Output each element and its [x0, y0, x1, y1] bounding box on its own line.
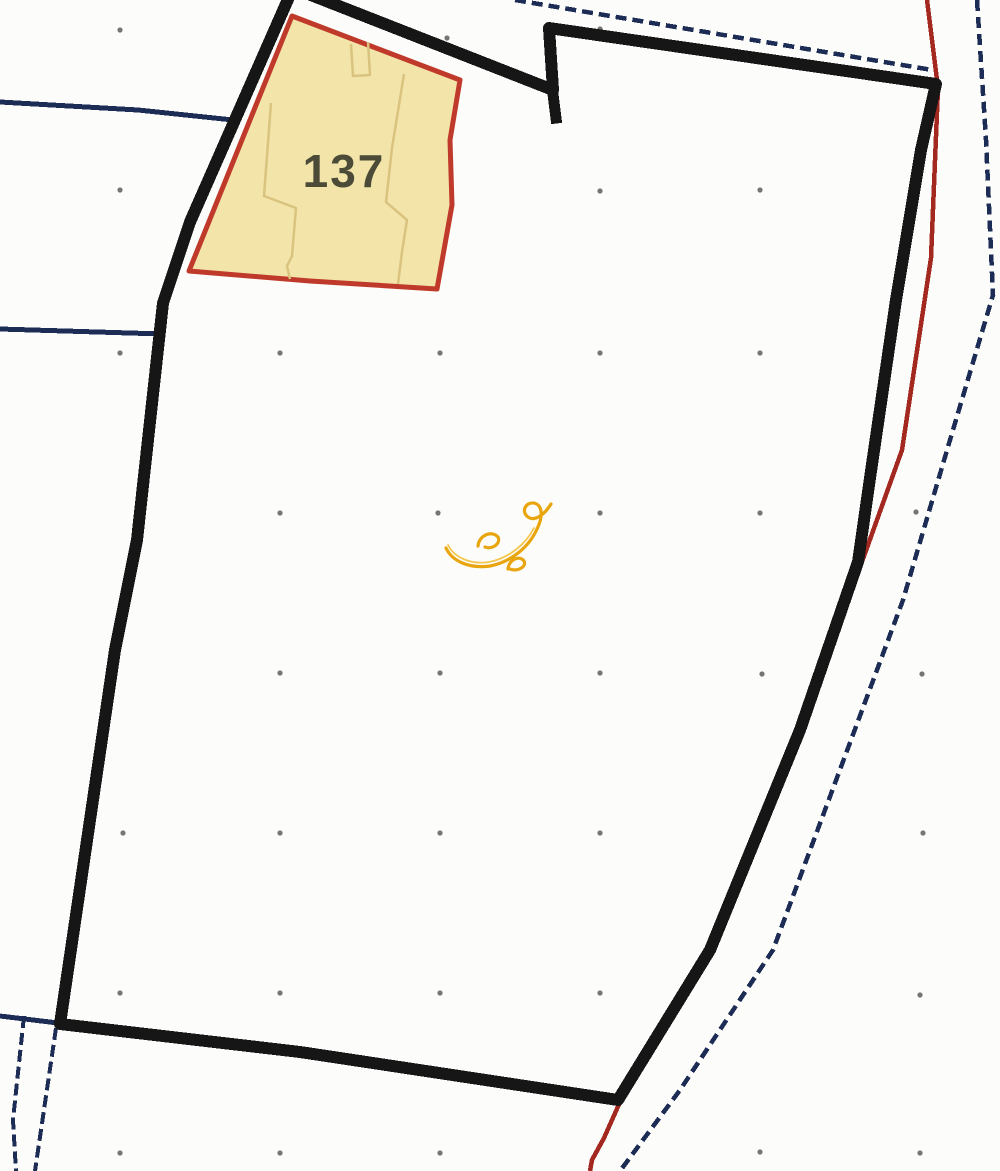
grid-dot: [917, 992, 922, 997]
parcel-number-label: 137: [303, 145, 386, 197]
grid-dot: [597, 670, 602, 675]
grid-dot: [597, 188, 602, 193]
blue-boundary-bottom-left-b: [35, 1028, 56, 1171]
annotation-main-flourish: [446, 503, 551, 567]
grid-dot: [597, 830, 602, 835]
grid-dot: [920, 830, 925, 835]
grid-dot: [277, 510, 282, 515]
grid-dot: [917, 1150, 922, 1155]
grid-dot: [117, 350, 122, 355]
grid-dot: [277, 350, 282, 355]
grid-dot: [277, 830, 282, 835]
grid-dot: [757, 1149, 762, 1154]
grid-dot: [757, 187, 762, 192]
red-boundary-right-side: [590, 0, 938, 1171]
grid-dot: [437, 990, 442, 995]
grid-dot: [277, 990, 282, 995]
grid-dot: [913, 509, 918, 514]
blue-boundary-top-left: [0, 102, 233, 120]
grid-dot: [277, 670, 282, 675]
grid-dot: [597, 990, 602, 995]
grid-dot: [597, 350, 602, 355]
grid-dot: [759, 671, 764, 676]
surveyed-boundary-outline: [60, 0, 936, 1100]
grid-dot: [437, 1150, 442, 1155]
grid-dot: [444, 35, 449, 40]
grid-dot: [597, 510, 602, 515]
grid-dot: [120, 830, 125, 835]
blue-boundary-mid-left: [0, 329, 162, 334]
annotation-small-loop: [478, 534, 499, 548]
grid-dot: [117, 27, 122, 32]
cadastral-map-canvas[interactable]: 137: [0, 0, 1000, 1171]
grid-dot: [919, 671, 924, 676]
grid-dot: [757, 350, 762, 355]
grid-dot: [277, 1150, 282, 1155]
grid-dot: [757, 510, 762, 515]
grid-dot: [117, 1150, 122, 1155]
handwritten-annotation: [446, 503, 551, 570]
grid-dot: [435, 510, 440, 515]
boundary-notch-tick: [552, 86, 556, 118]
grid-dot: [117, 990, 122, 995]
cadastral-map: 137: [0, 0, 1000, 1171]
grid-dot: [437, 350, 442, 355]
grid-dot: [437, 830, 442, 835]
blue-boundary-bottom-left-horizontal: [0, 1016, 58, 1023]
grid-dot: [117, 187, 122, 192]
blue-boundary-bottom-left-a: [13, 1016, 24, 1171]
grid-dot: [437, 670, 442, 675]
